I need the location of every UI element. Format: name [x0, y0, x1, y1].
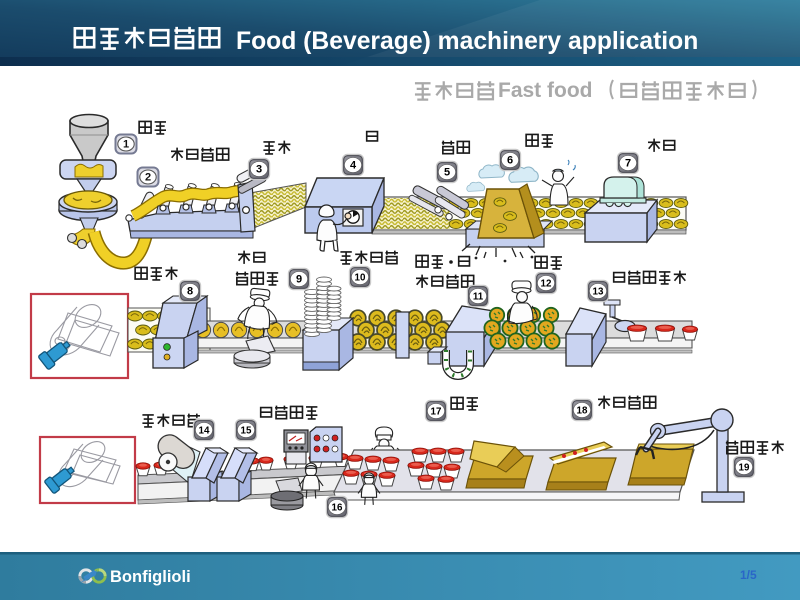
svg-text:11: 11	[473, 292, 484, 303]
svg-text:Bonfiglioli: Bonfiglioli	[110, 568, 191, 586]
svg-text:16: 16	[332, 503, 343, 514]
svg-text:2: 2	[145, 172, 151, 184]
svg-text:12: 12	[541, 279, 552, 290]
svg-text:19: 19	[739, 463, 750, 474]
svg-text:14: 14	[199, 426, 210, 437]
svg-text:Fast food: Fast food	[498, 79, 593, 102]
svg-text:17: 17	[431, 407, 442, 418]
svg-text:18: 18	[577, 406, 588, 417]
svg-text:Food (Beverage) machinery appl: Food (Beverage) machinery application	[236, 28, 698, 55]
svg-text:6: 6	[507, 155, 513, 167]
svg-text:7: 7	[625, 158, 631, 170]
svg-text:13: 13	[593, 287, 604, 298]
svg-text:15: 15	[241, 426, 252, 437]
svg-text:1: 1	[123, 139, 129, 151]
svg-text:5: 5	[444, 167, 450, 179]
svg-text:3: 3	[256, 164, 262, 176]
svg-text:1/5: 1/5	[740, 568, 757, 582]
svg-text:8: 8	[187, 286, 193, 298]
svg-text:9: 9	[296, 274, 302, 286]
svg-text:4: 4	[350, 160, 357, 172]
svg-text:10: 10	[355, 273, 366, 284]
